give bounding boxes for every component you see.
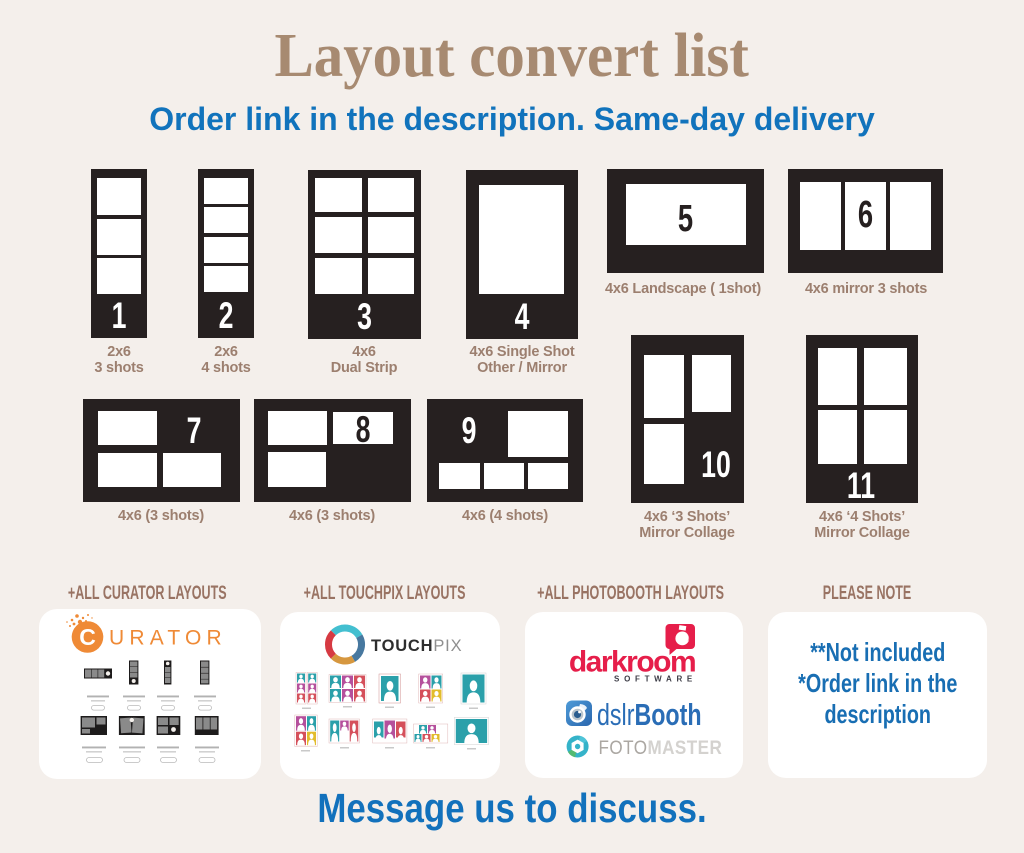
svg-text:URATOR: URATOR	[109, 627, 227, 650]
svg-text:C: C	[79, 624, 96, 650]
svg-text:dslrBooth: dslrBooth	[597, 697, 702, 732]
svg-text:FOTOMASTER: FOTOMASTER	[599, 737, 723, 758]
svg-text:SOFTWARE: SOFTWARE	[614, 675, 697, 684]
svg-text:TOUCHPIX: TOUCHPIX	[371, 637, 462, 655]
